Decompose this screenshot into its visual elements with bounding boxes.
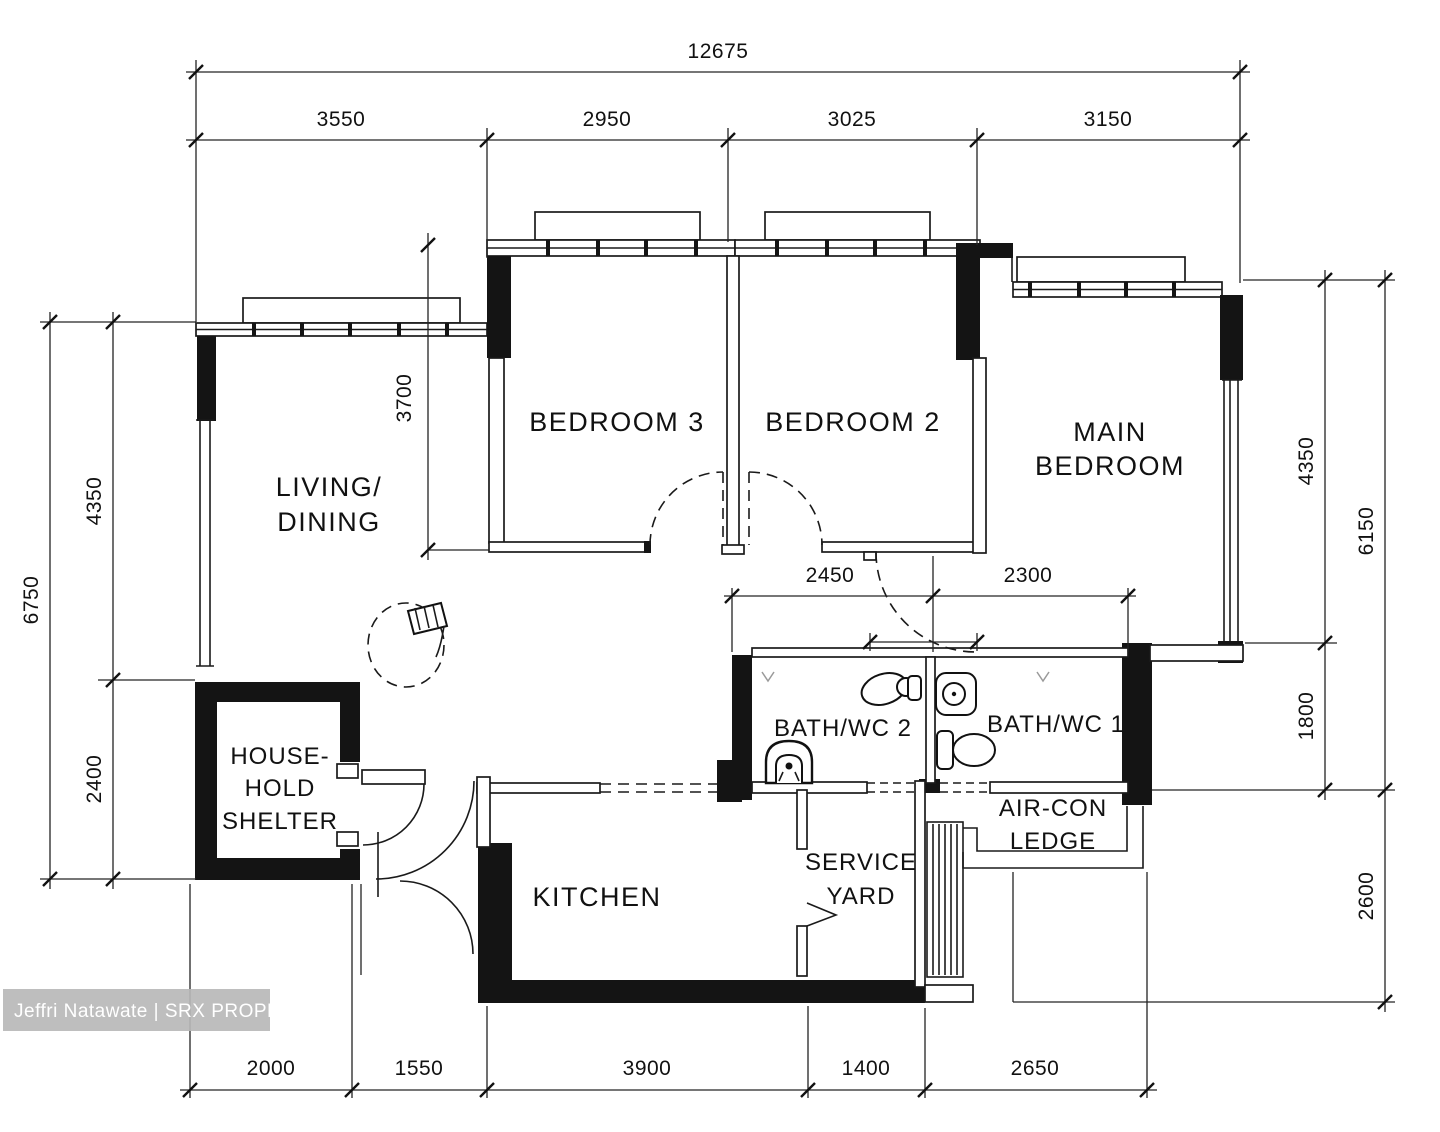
living-dashed-swing [368, 603, 447, 687]
dim-bottom-5: 2650 [1011, 1057, 1060, 1080]
watermark-text: Jeffri Natawate | SRX PROPERTY [14, 1001, 319, 1022]
bedroom2-door [749, 472, 822, 545]
dim-right-3: 2600 [1355, 872, 1378, 921]
bath-dividing-wall [926, 657, 935, 783]
main-bedroom-ledge [1017, 257, 1185, 282]
aircon-ledge-label-2: LEDGE [1010, 828, 1096, 855]
dim-top-1: 3550 [317, 108, 366, 131]
room-labels: LIVING/ DINING BEDROOM 3 BEDROOM 2 MAIN … [222, 407, 1185, 912]
dim-right-overall: 6150 [1355, 507, 1378, 556]
service-yard-label: SERVICE [805, 849, 917, 876]
bedroom3-door [650, 472, 723, 545]
kitchen-label: KITCHEN [532, 882, 661, 912]
floor-plan-image: 12675 3550 2950 3025 3150 6750 4350 2400… [0, 0, 1440, 1132]
bedroom3-window-wall [487, 212, 735, 256]
bedroom3-ledge [535, 212, 700, 240]
dim-bottom-1: 2000 [247, 1057, 296, 1080]
vent-mark [1037, 672, 1049, 681]
dim-top-2: 2950 [583, 108, 632, 131]
structural-walls [197, 256, 1243, 1003]
dim-bath2-width: 2450 [806, 564, 855, 587]
bath2-label: BATH/WC 2 [774, 715, 912, 742]
main-bedroom-window-wall [956, 243, 1222, 297]
dim-top-4: 3150 [1084, 108, 1133, 131]
dimension-labels: 12675 3550 2950 3025 3150 6750 4350 2400… [20, 40, 1378, 1080]
bedroom3-label: BEDROOM 3 [529, 407, 705, 437]
bedroom3-door-arc [650, 472, 723, 545]
dim-bed3-depth: 3700 [393, 374, 416, 423]
floor-plan-drawing: 12675 3550 2950 3025 3150 6750 4350 2400… [0, 0, 1440, 1132]
dim-bath1-width: 2300 [1004, 564, 1053, 587]
bedroom2-label: BEDROOM 2 [765, 407, 941, 437]
vent-mark [762, 672, 774, 681]
dim-bottom-2: 1550 [395, 1057, 444, 1080]
bath2-toilet-icon [857, 668, 921, 711]
dim-left-2: 2400 [83, 755, 106, 804]
living-side-window [196, 420, 214, 666]
entrance-gate-swing-arc [376, 781, 474, 879]
dimension-lines [40, 60, 1395, 1098]
dim-top-3: 3025 [828, 108, 877, 131]
entrance-door-swing-arc [363, 784, 424, 845]
bedroom2-ledge [765, 212, 930, 240]
watermark: Jeffri Natawate | SRX PROPERTY [3, 989, 319, 1031]
bath1-basin-icon [936, 673, 976, 715]
dim-right-2: 1800 [1295, 692, 1318, 741]
service-yard-wall [797, 790, 807, 849]
dim-bottom-4: 1400 [842, 1057, 891, 1080]
dim-right-1: 4350 [1295, 437, 1318, 486]
living-dining-label-2: DINING [277, 507, 381, 537]
dim-top-overall: 12675 [688, 40, 749, 63]
kitchen-top-wall [477, 783, 600, 793]
entrance-gate-swing-arc-2 [400, 881, 473, 954]
main-bedroom-label-2: BEDROOM [1035, 451, 1185, 481]
bath-top-wall [752, 648, 1128, 657]
dim-left-1: 4350 [83, 477, 106, 526]
main-bedroom-side-window [1222, 380, 1242, 641]
aircon-ledge-label: AIR-CON [999, 795, 1107, 822]
bedroom2-window-wall [735, 212, 980, 256]
household-shelter-label: HOUSE- [230, 743, 329, 770]
entrance-door [362, 770, 474, 954]
living-window-wall [196, 298, 487, 336]
household-shelter-label-3: SHELTER [222, 808, 338, 835]
aircon-ladder [927, 822, 963, 977]
living-dining-label: LIVING/ [276, 472, 383, 502]
bath1-label: BATH/WC 1 [987, 711, 1125, 738]
household-shelter-label-2: HOLD [245, 775, 316, 802]
dim-bottom-3: 3900 [623, 1057, 672, 1080]
bath2-shower-icon [766, 741, 812, 783]
service-yard-label-2: YARD [827, 883, 896, 910]
main-bedroom-label: MAIN [1073, 417, 1147, 447]
bedroom2-door-arc [749, 472, 822, 545]
entrance-door-leaf [362, 770, 425, 784]
dim-left-overall: 6750 [20, 576, 43, 625]
